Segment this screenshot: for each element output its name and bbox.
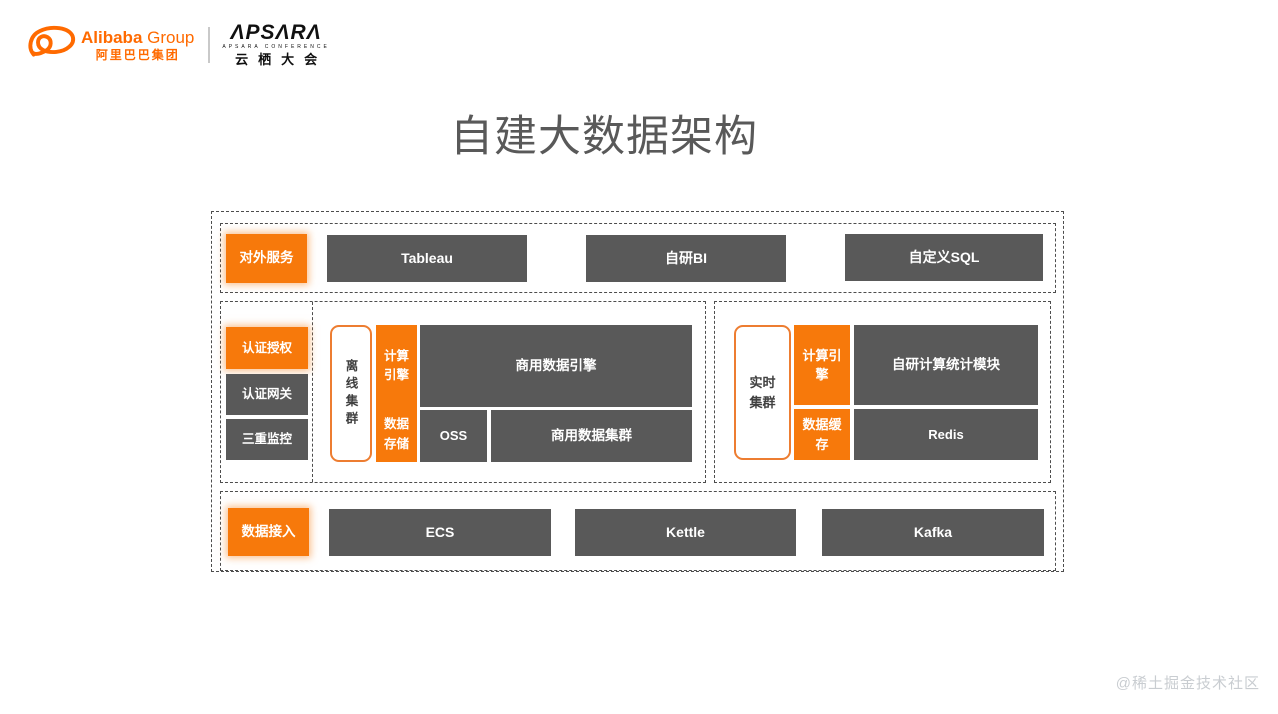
- header-logos: Alibaba Group 阿里巴巴集团 ΛPSΛRΛ APSARA CONFE…: [25, 20, 330, 70]
- slide: Alibaba Group 阿里巴巴集团 ΛPSΛRΛ APSARA CONFE…: [0, 0, 1278, 714]
- external-service-section: 对外服务 Tableau 自研BI 自定义SQL: [220, 223, 1056, 293]
- alibaba-logo-icon: [25, 23, 77, 67]
- apsara-logo: ΛPSΛRΛ APSARA CONFERENCE 云栖大会: [222, 22, 329, 69]
- alibaba-logo-cn: 阿里巴巴集团: [96, 47, 180, 63]
- offline-cluster-label-frame: 离线集群: [330, 325, 372, 462]
- block-triple-monitoring: 三重监控: [226, 419, 308, 460]
- auth-cluster-divider: [312, 302, 313, 482]
- block-tableau: Tableau: [327, 235, 527, 282]
- external-service-label: 对外服务: [226, 234, 307, 283]
- data-access-label: 数据接入: [228, 508, 309, 556]
- alibaba-logo-name-light: Group: [142, 28, 194, 47]
- architecture-diagram: 对外服务 Tableau 自研BI 自定义SQL 认证授权 认证网关 三重监控 …: [211, 211, 1064, 572]
- block-oss: OSS: [420, 410, 487, 462]
- alibaba-logo-name-bold: Alibaba: [81, 28, 142, 47]
- apsara-subtitle: APSARA CONFERENCE: [222, 43, 329, 51]
- watermark: @稀土掘金技术社区: [1116, 672, 1260, 693]
- alibaba-logo: Alibaba Group 阿里巴巴集团: [81, 28, 194, 63]
- alibaba-logo-name: Alibaba Group: [81, 28, 194, 47]
- block-auth-gateway: 认证网关: [226, 374, 308, 415]
- offline-orange-column: 计算引擎 数据存储: [376, 325, 417, 462]
- data-access-section: 数据接入 ECS Kettle Kafka: [220, 491, 1056, 571]
- block-compute-engine: 计算引擎: [376, 325, 417, 407]
- block-data-cache: 数据缓存: [794, 409, 850, 460]
- offline-cluster-label: 离线集群: [342, 359, 361, 429]
- block-commercial-data-cluster: 商用数据集群: [491, 410, 692, 462]
- apsara-cn: 云栖大会: [235, 51, 327, 69]
- realtime-cluster-label: 实时集群: [748, 373, 778, 412]
- block-custom-sql: 自定义SQL: [845, 234, 1043, 281]
- realtime-cluster-section: 实时集群 计算引擎 自研计算统计模块 数据缓存 Redis: [714, 301, 1051, 483]
- block-kafka: Kafka: [822, 509, 1044, 556]
- block-realtime-compute-engine: 计算引擎: [794, 325, 850, 405]
- apsara-wordmark: ΛPSΛRΛ: [230, 22, 321, 43]
- block-kettle: Kettle: [575, 509, 796, 556]
- offline-cluster-section: 认证授权 认证网关 三重监控 离线集群 计算引擎 数据存储 商用数据引擎 OSS…: [220, 301, 706, 483]
- block-redis: Redis: [854, 409, 1038, 460]
- logo-divider: [208, 27, 210, 63]
- block-data-storage: 数据存储: [376, 407, 417, 462]
- block-self-developed-stat-module: 自研计算统计模块: [854, 325, 1038, 405]
- block-ecs: ECS: [329, 509, 551, 556]
- block-auth-authorization: 认证授权: [226, 327, 308, 369]
- slide-title: 自建大数据架构: [450, 102, 758, 164]
- block-commercial-data-engine: 商用数据引擎: [420, 325, 692, 407]
- realtime-cluster-label-frame: 实时集群: [734, 325, 791, 460]
- block-self-developed-bi: 自研BI: [586, 235, 786, 282]
